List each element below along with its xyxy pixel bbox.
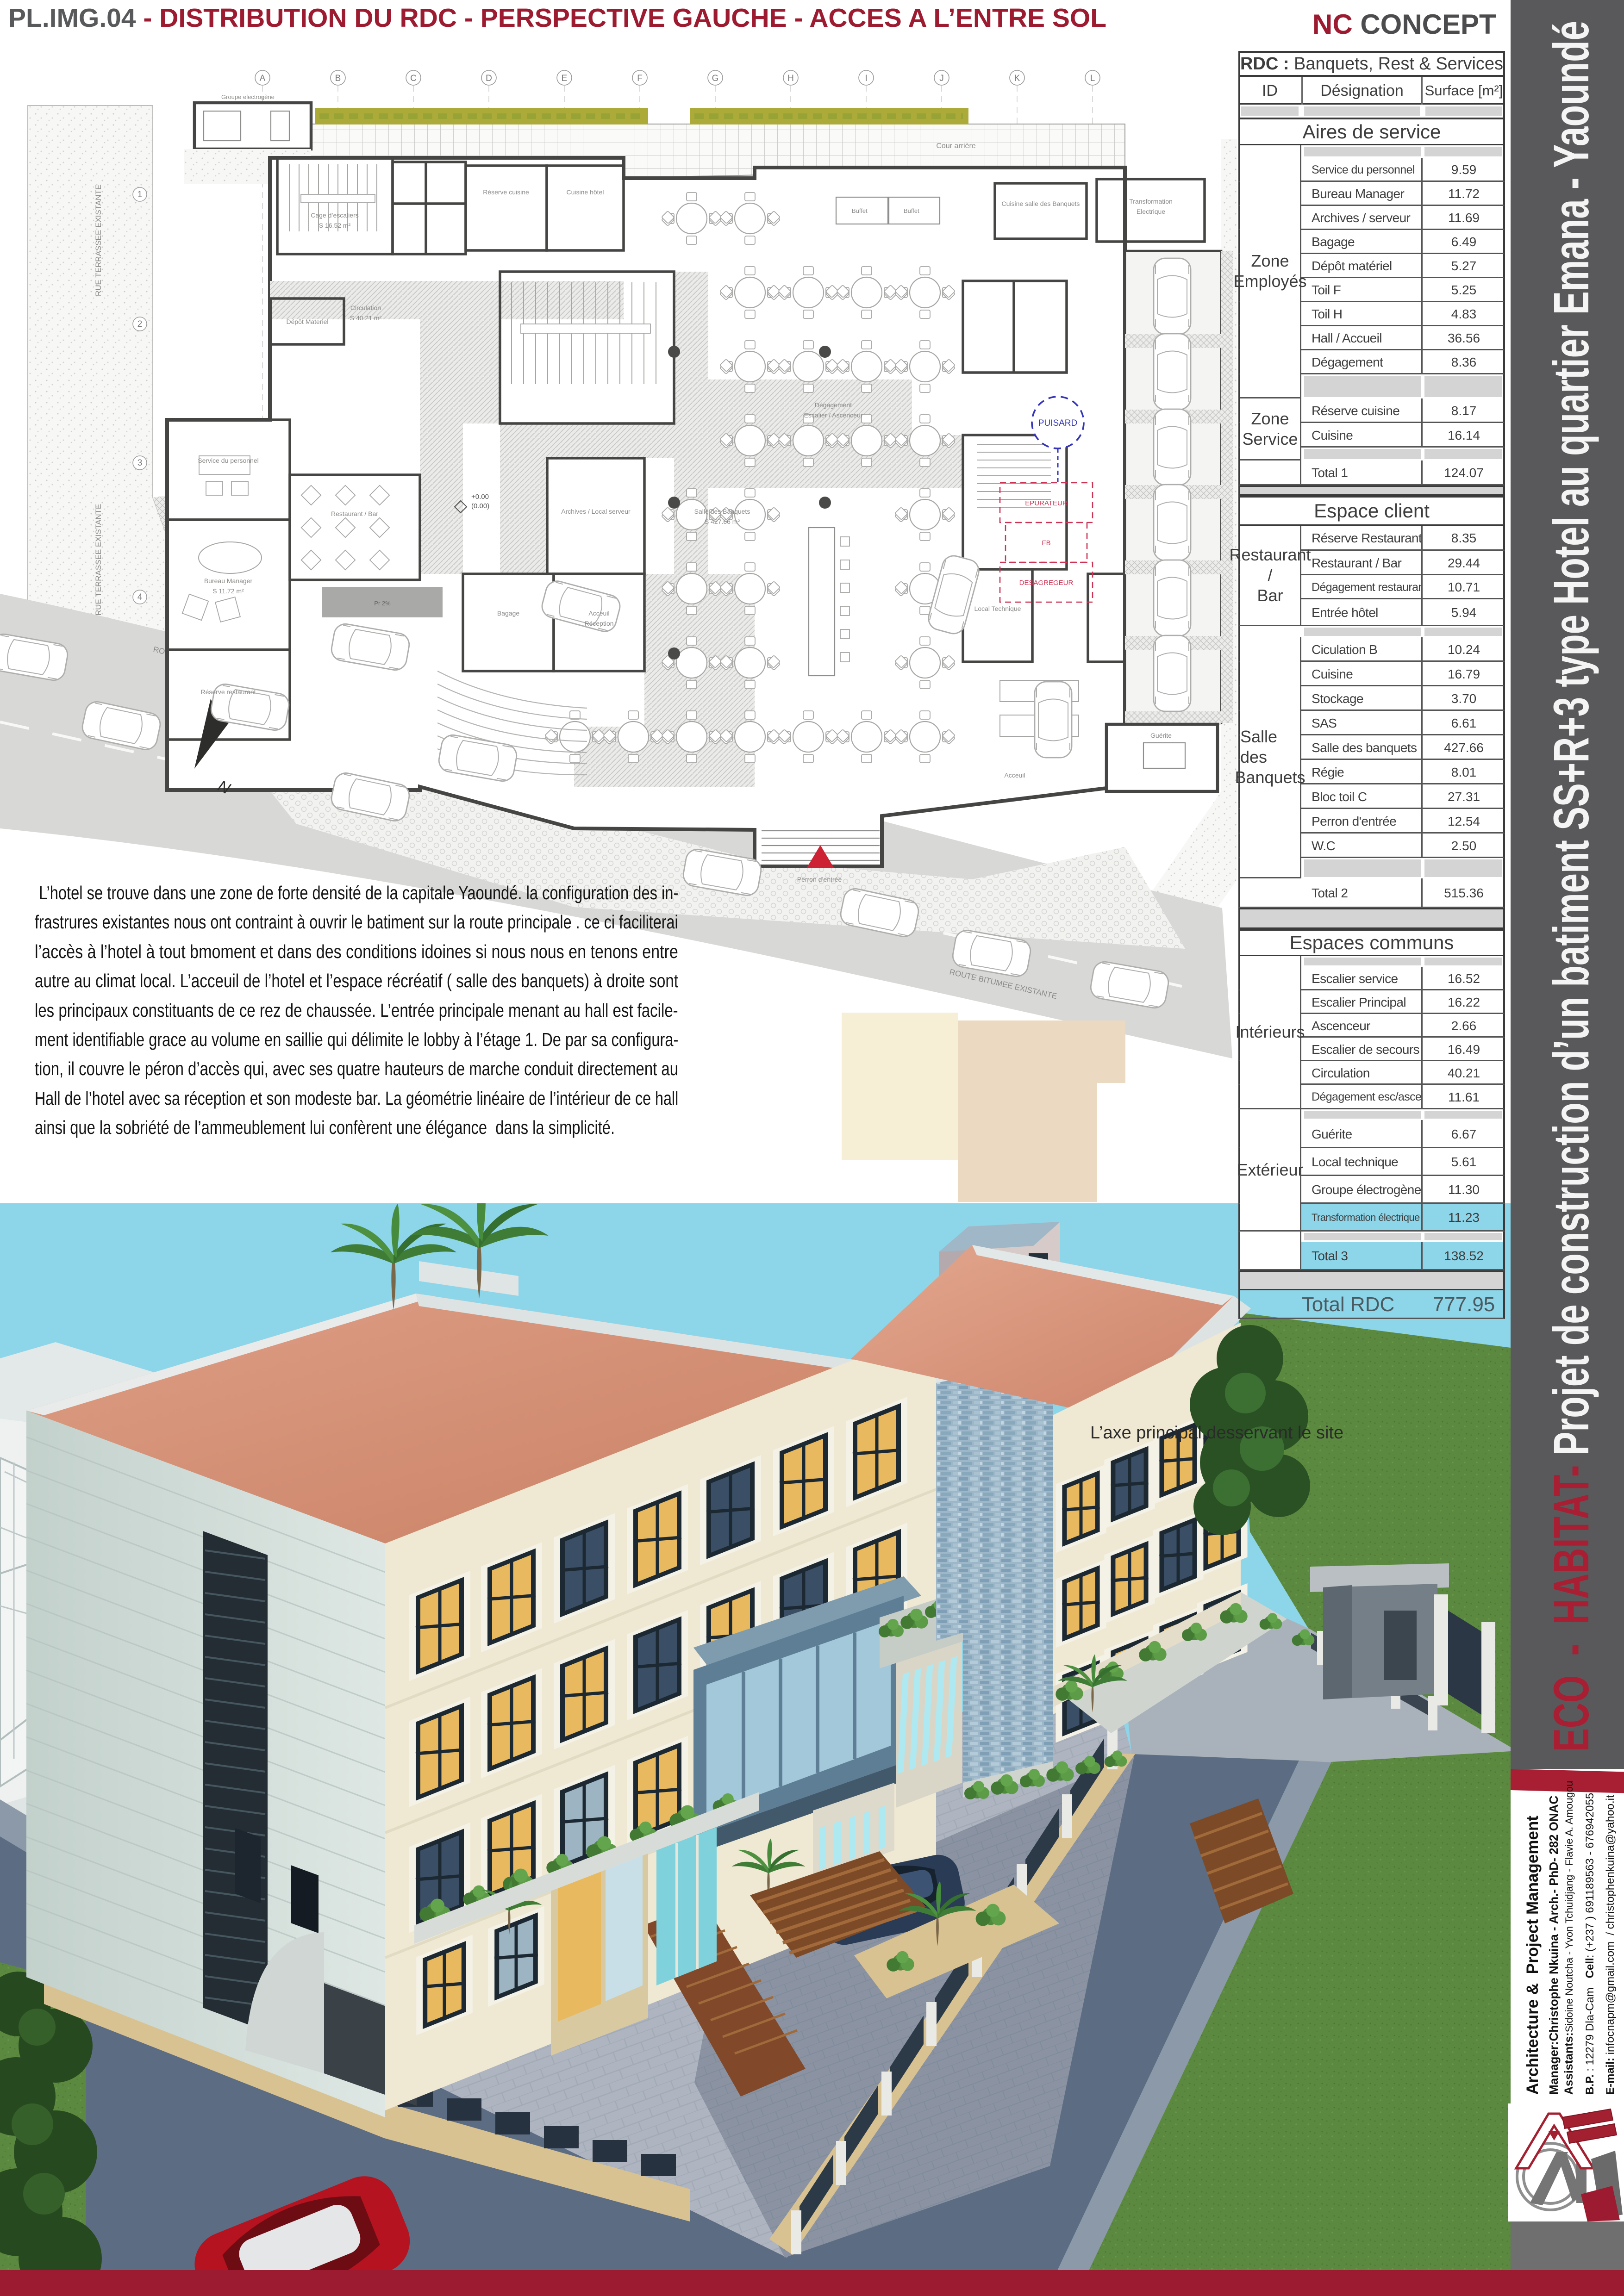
svg-text:2: 2 (137, 319, 143, 329)
svg-text:F: F (637, 74, 643, 83)
svg-text:+0.00: +0.00 (471, 493, 489, 501)
svg-text:D: D (486, 74, 492, 83)
svg-text:B: B (335, 74, 341, 83)
svg-text:PUISARD: PUISARD (1038, 418, 1077, 428)
svg-text:Dégagement: Dégagement (815, 401, 852, 409)
svg-text:3: 3 (137, 458, 143, 468)
svg-text:Local Technique: Local Technique (974, 605, 1021, 612)
svg-text:C: C (410, 74, 417, 83)
svg-text:ECO - HABITAT- Projet de con: ECO - HABITAT- Projet de construction d’… (1543, 21, 1599, 1752)
svg-text:Circulation: Circulation (350, 304, 381, 311)
svg-text:L’axe principal desservant le: L’axe principal desservant le site (1090, 1423, 1343, 1443)
svg-text:J: J (939, 74, 944, 83)
svg-text:Bagage: Bagage (497, 610, 519, 617)
svg-text:EPURATEUR: EPURATEUR (1025, 499, 1068, 507)
svg-text:RUE TERRASSEE EXISTANTE: RUE TERRASSEE EXISTANTE (94, 504, 103, 616)
svg-text:H: H (787, 74, 794, 83)
svg-text:S 11.72 m²: S 11.72 m² (212, 587, 244, 595)
svg-text:(0.00): (0.00) (471, 502, 489, 510)
svg-text:Service du personnel: Service du personnel (198, 457, 259, 464)
svg-text:Groupe electrogène: Groupe electrogène (221, 93, 275, 100)
svg-text:Guérite: Guérite (1150, 732, 1172, 739)
svg-text:Buffet: Buffet (904, 207, 919, 214)
svg-text:Réception: Réception (584, 620, 613, 627)
svg-text:S 16.52 m²: S 16.52 m² (319, 222, 351, 229)
svg-text:Escalier / Ascenceur: Escalier / Ascenceur (804, 411, 863, 419)
svg-text:S 40.21 m²: S 40.21 m² (350, 314, 382, 322)
svg-text:Réserve cuisine: Réserve cuisine (483, 188, 529, 196)
svg-text:I: I (865, 74, 867, 83)
svg-text:Cuisine hôtel: Cuisine hôtel (567, 188, 604, 196)
svg-text:Buffet: Buffet (852, 207, 868, 214)
svg-text:4: 4 (137, 592, 143, 602)
svg-text:Bureau Manager: Bureau Manager (204, 577, 253, 585)
svg-text:Electrique: Electrique (1137, 208, 1165, 215)
svg-text:1: 1 (137, 190, 143, 199)
svg-text:Restaurant / Bar: Restaurant / Bar (331, 510, 378, 517)
svg-text:L: L (1090, 74, 1095, 83)
svg-text:FB: FB (1042, 539, 1050, 547)
svg-text:RUE TERRASSEE EXISTANTE: RUE TERRASSEE EXISTANTE (94, 185, 103, 296)
svg-text:Cuisine salle des Banquets: Cuisine salle des Banquets (1002, 200, 1080, 207)
svg-text:Cage d’escaliers: Cage d’escaliers (311, 212, 359, 219)
svg-text:Archives / Local serveur: Archives / Local serveur (561, 508, 631, 515)
svg-text:Acceuil: Acceuil (588, 610, 609, 617)
svg-text:Dépôt Materiel: Dépôt Materiel (286, 318, 328, 325)
svg-text:Pr 2%: Pr 2% (374, 600, 391, 607)
svg-text:Salle des Banquets: Salle des Banquets (694, 508, 750, 515)
svg-text:Réserve restaurant: Réserve restaurant (200, 688, 256, 696)
svg-text:Perron d’entrée: Perron d’entrée (797, 876, 842, 883)
svg-text:G: G (712, 74, 719, 83)
svg-text:S 427.66 m²: S 427.66 m² (705, 518, 740, 525)
svg-text:Transformation: Transformation (1129, 198, 1173, 205)
svg-text:K: K (1014, 74, 1020, 83)
svg-text:E: E (562, 74, 568, 83)
svg-text:DESAGREGEUR: DESAGREGEUR (1019, 579, 1074, 587)
svg-text:A: A (260, 74, 266, 83)
svg-text:Acceuil: Acceuil (1004, 772, 1025, 779)
svg-text:Cour arrière: Cour arrière (936, 142, 975, 150)
